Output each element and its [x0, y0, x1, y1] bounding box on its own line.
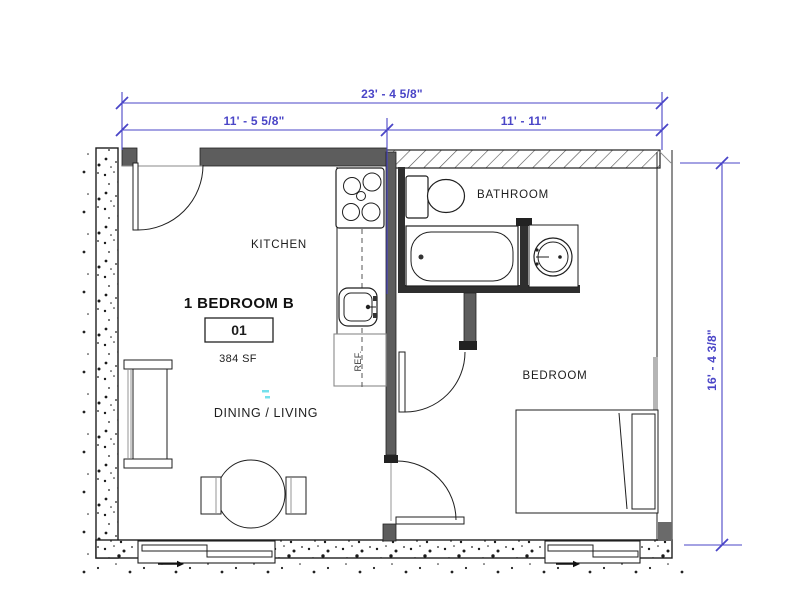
vanity-sink — [529, 225, 578, 287]
left-exterior-wall — [96, 148, 118, 558]
bathtub — [406, 226, 518, 286]
wall-end-block — [658, 522, 672, 541]
bedroom-door-swing-arc — [397, 461, 456, 520]
sofa — [124, 360, 172, 468]
entry-door-leaf — [133, 163, 138, 230]
room-label-dining-living: DINING / LIVING — [214, 406, 318, 420]
toilet — [406, 176, 465, 218]
burner — [362, 203, 380, 221]
top-wall-hatched — [387, 150, 660, 168]
dim-overall-width-label: 23' - 4 5/8" — [361, 87, 423, 101]
unit-number-tag: 01 — [205, 318, 273, 342]
bathroom-door — [399, 352, 465, 412]
refrigerator-label: REF. — [353, 350, 363, 371]
dim-overall-depth-label: 16' - 4 3/8" — [705, 329, 719, 391]
chair-right — [286, 477, 306, 514]
kitchen-sink — [339, 288, 377, 326]
unit-number-label: 01 — [231, 322, 247, 338]
sofa-armrest — [124, 459, 172, 468]
burner — [363, 173, 381, 191]
window-sliding-panel — [593, 551, 638, 557]
stove — [336, 168, 384, 228]
dim-bedroom-side-width-label: 11' - 11" — [501, 114, 547, 128]
burner — [357, 192, 366, 201]
unit-area-label: 384 SF — [219, 353, 257, 365]
bathroom-door-swing-arc — [405, 352, 465, 412]
chair-left — [201, 477, 221, 514]
sofa-armrest — [124, 360, 172, 369]
window-sliding-panel — [142, 545, 207, 551]
window-sliding-panel — [548, 545, 593, 551]
bedroom-door-leaf — [396, 517, 464, 524]
burner — [343, 204, 360, 221]
entry-door — [133, 163, 203, 230]
dim-kitchen-side-width-label: 11' - 5 5/8" — [224, 114, 285, 128]
floor-plan: 23' - 4 5/8" 11' - 5 5/8" 11' - 11" 16' … — [0, 0, 800, 600]
screen-artifact — [262, 390, 270, 399]
top-wall-solid — [122, 148, 387, 166]
tub-drain — [419, 255, 424, 260]
unit-type-label: 1 BEDROOM B — [184, 295, 294, 312]
bathroom-door-leaf — [399, 352, 405, 412]
room-label-kitchen: KITCHEN — [251, 239, 307, 251]
room-label-bathroom: BATHROOM — [477, 189, 549, 201]
floor-plan-canvas: 23' - 4 5/8" 11' - 5 5/8" 11' - 11" 16' … — [0, 0, 800, 600]
bed — [516, 410, 658, 513]
bedroom-door — [396, 461, 464, 524]
window-living — [138, 541, 275, 567]
window-bedroom — [545, 541, 640, 567]
entry-door-swing-arc — [138, 165, 203, 230]
kitchen-bedroom-divider-wall — [383, 152, 398, 541]
burner — [344, 178, 361, 195]
dining-table — [217, 460, 285, 528]
window-sliding-panel — [207, 551, 272, 557]
sofa-seat — [133, 369, 167, 459]
bed-pillow — [632, 414, 655, 509]
room-label-bedroom: BEDROOM — [522, 370, 587, 382]
